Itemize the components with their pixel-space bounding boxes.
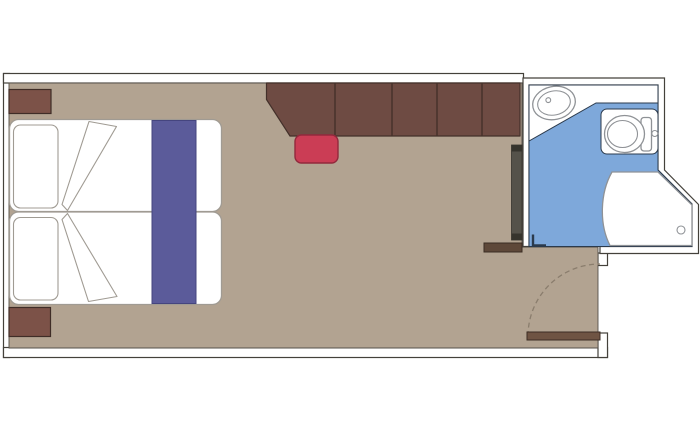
shower xyxy=(602,172,692,246)
nightstand-bottom xyxy=(9,308,51,337)
wall-top xyxy=(4,74,524,84)
door-leaf xyxy=(527,332,600,340)
pillow-lower xyxy=(14,218,59,301)
mirror-cap-bottom xyxy=(512,234,523,241)
pillow-upper xyxy=(14,125,59,208)
nightstand-top xyxy=(9,90,51,114)
double-bed xyxy=(10,120,222,305)
wall-bottom xyxy=(4,348,608,358)
mirror-body xyxy=(512,145,523,240)
stool xyxy=(295,135,338,163)
bed-runner xyxy=(152,121,196,304)
mirror-panel xyxy=(512,145,523,240)
floor-plan-page xyxy=(0,0,700,433)
toilet xyxy=(605,116,658,153)
shelf xyxy=(484,243,522,252)
cabin-floor-plan xyxy=(0,0,700,433)
wardrobe xyxy=(267,83,521,136)
mirror-cap-top xyxy=(512,145,523,152)
